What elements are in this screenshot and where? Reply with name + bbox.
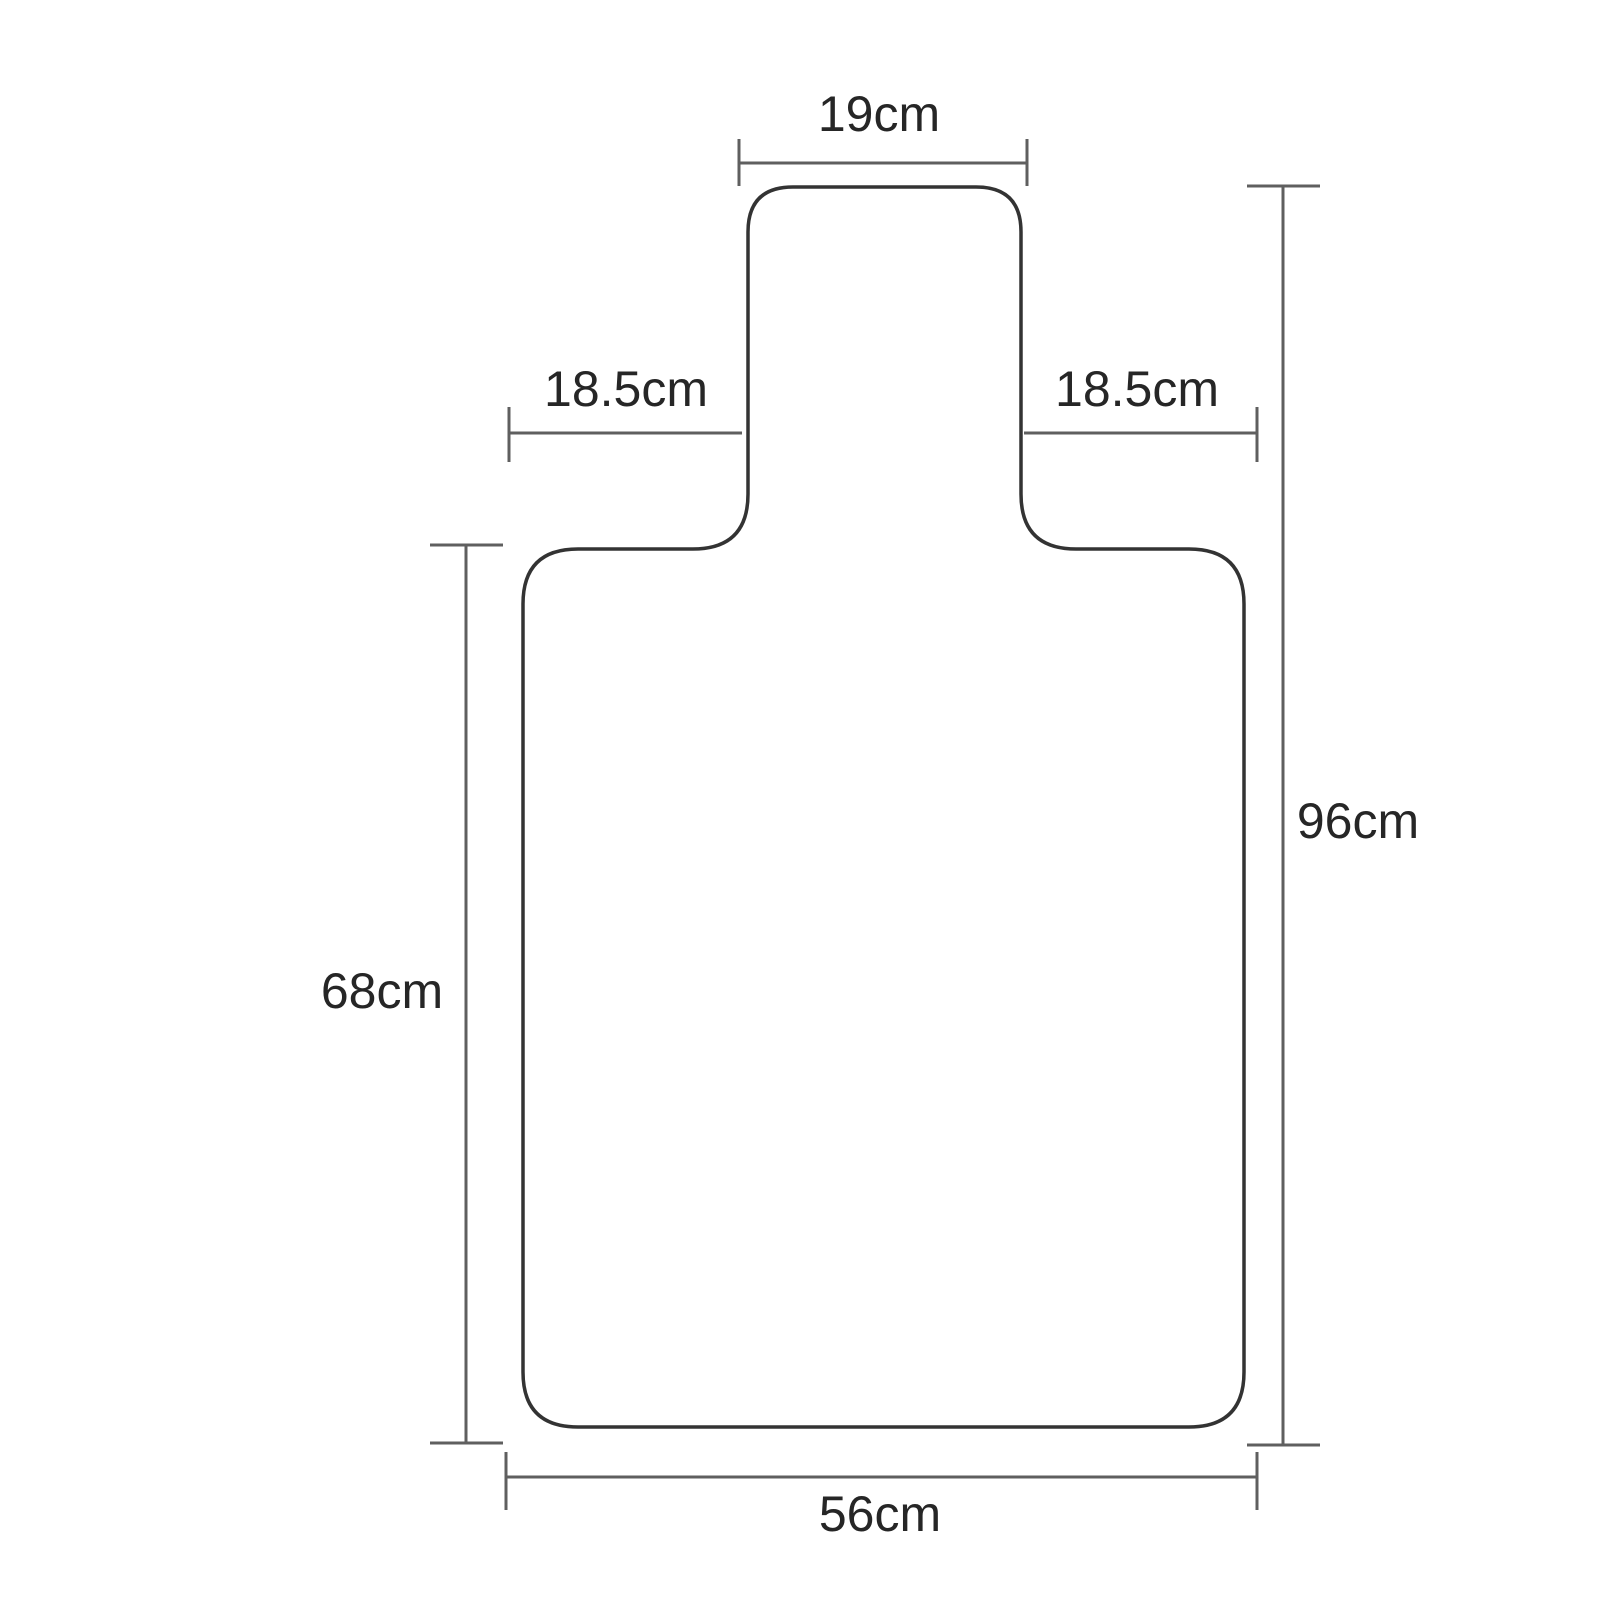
- right-shoulder-label: 18.5cm: [1055, 361, 1219, 417]
- overall-height-label: 96cm: [1297, 793, 1419, 849]
- dim-body-height: 68cm: [321, 545, 503, 1443]
- body-width-label: 56cm: [819, 1486, 941, 1542]
- tab-width-label: 19cm: [818, 86, 940, 142]
- dim-right-shoulder: 18.5cm: [1024, 361, 1257, 462]
- diagram-canvas: 19cm 18.5cm 18.5cm 96cm 68cm: [0, 0, 1600, 1600]
- chair-mat-dimension-diagram: 19cm 18.5cm 18.5cm 96cm 68cm: [0, 0, 1600, 1600]
- dim-body-width: 56cm: [506, 1452, 1257, 1542]
- dim-left-shoulder: 18.5cm: [509, 361, 742, 462]
- dim-overall-height: 96cm: [1247, 186, 1419, 1445]
- body-height-label: 68cm: [321, 963, 443, 1019]
- left-shoulder-label: 18.5cm: [544, 361, 708, 417]
- dim-tab-width: 19cm: [739, 86, 1027, 186]
